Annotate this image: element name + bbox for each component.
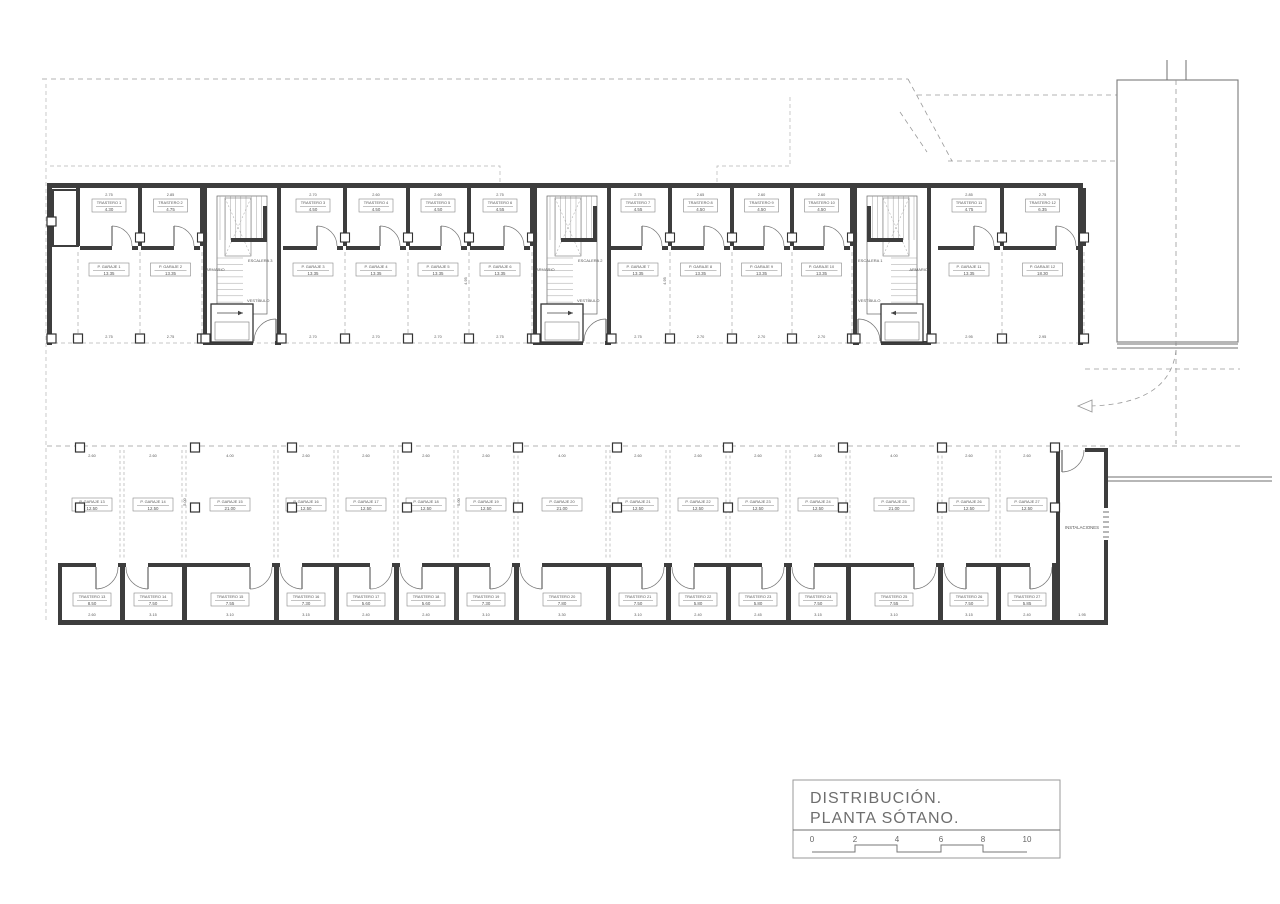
vestibulo-label-3: VESTÍBULO xyxy=(858,298,880,303)
instalaciones-door-arc xyxy=(1062,450,1084,472)
stair-core-3: ESCALERA 1ARMARIOVESTÍBULO xyxy=(851,188,936,345)
lower-garaje-label-21-area: 12.50 xyxy=(633,506,645,511)
lower-dim-18: 2.60 xyxy=(422,454,429,458)
lower-garaje-label-18-area: 12.50 xyxy=(421,506,433,511)
upper-unit-6: TRASTERO 64.55P. GARAJE 613.352.752.75 xyxy=(470,188,537,343)
lower-trastero-label-19: TRASTERO 197.30 xyxy=(467,593,505,606)
lower-garaje-label-17-name: P. GARAJE 17 xyxy=(353,499,378,504)
lower-trastero-label-18-area: 5.60 xyxy=(422,601,431,606)
escalera-label-1: ESCALERA 3 xyxy=(248,258,273,263)
trastero-label-4-area: 4.50 xyxy=(372,207,381,212)
lower-trastero-dim-21: 3.10 xyxy=(634,613,641,617)
lower-trastero-label-15: TRASTERO 157.55 xyxy=(211,593,249,606)
lower-garaje-label-22: P. GARAJE 2212.50 xyxy=(678,498,718,511)
lower-trastero-label-19-name: TRASTERO 19 xyxy=(473,594,500,599)
storage-room-16: TRASTERO 167.303.15 xyxy=(274,563,336,622)
structural-column xyxy=(613,443,622,452)
instalaciones-vent-ticks xyxy=(1103,512,1109,537)
lower-dim-16: 2.60 xyxy=(302,454,309,458)
lower-trastero-dim-20: 3.30 xyxy=(558,613,565,617)
lower-garaje-label-27-name: P. GARAJE 27 xyxy=(1014,499,1039,504)
parking-bay-25: 4.00P. GARAJE 2521.00 xyxy=(846,450,914,558)
garaje-label-5-area: 13.35 xyxy=(433,271,445,276)
lower-garaje-label-19-name: P. GARAJE 19 xyxy=(473,499,498,504)
drive-path-arc xyxy=(1084,350,1176,406)
lower-trastero-dim-26: 3.15 xyxy=(965,613,972,617)
trastero-label-3-name: TRASTERO 3 xyxy=(301,200,325,205)
vestibulo-label-2: VESTÍBULO xyxy=(577,298,599,303)
trastero-label-6: TRASTERO 64.55 xyxy=(483,199,517,212)
garaje-label-1-name: P. GARAJE 1 xyxy=(97,264,120,269)
instalaciones-dim: 1.95 xyxy=(1078,613,1085,617)
lower-garaje-label-19-area: 12.50 xyxy=(481,506,493,511)
garaje-label-1-area: 13.35 xyxy=(104,271,116,276)
lower-trastero-label-22-area: 5.80 xyxy=(694,601,703,606)
garaje-label-6: P. GARAJE 613.35 xyxy=(480,263,520,276)
structural-column xyxy=(851,334,860,343)
structural-column xyxy=(191,443,200,452)
garaje-label-7: P. GARAJE 713.35 xyxy=(618,263,658,276)
lower-garaje-label-13-area: 12.50 xyxy=(87,506,99,511)
garaje-label-3-name: P. GARAJE 3 xyxy=(301,264,324,269)
structural-column xyxy=(47,334,56,343)
lower-trastero-label-17: TRASTERO 175.60 xyxy=(347,593,385,606)
lower-garaje-label-14: P. GARAJE 1412.50 xyxy=(133,498,173,511)
garaje-label-7-area: 13.35 xyxy=(633,271,645,276)
lower-trastero-label-15-name: TRASTERO 15 xyxy=(217,594,244,599)
lower-trastero-label-13-name: TRASTERO 13 xyxy=(79,594,106,599)
lower-trastero-label-14: TRASTERO 147.50 xyxy=(134,593,172,606)
scale-numbers: 0 2 4 6 8 10 xyxy=(810,835,1032,844)
ramp-structure xyxy=(1117,80,1238,342)
lower-depth-dim-1: 5.00 xyxy=(183,498,187,505)
lower-trastero-label-25-name: TRASTERO 25 xyxy=(881,594,908,599)
lower-trastero-label-24: TRASTERO 247.50 xyxy=(799,593,837,606)
floor-plan-drawing: TRASTERO 14.30P. GARAJE 113.352.752.75TR… xyxy=(0,0,1280,904)
storage-room-15: TRASTERO 157.553.10 xyxy=(182,563,276,622)
lower-dim-23: 2.60 xyxy=(754,454,761,458)
lower-trastero-label-13: TRASTERO 138.50 xyxy=(73,593,111,606)
garaje-label-10-name: P. GARAJE 10 xyxy=(809,264,835,269)
structural-column xyxy=(1051,503,1060,512)
garaje-label-6-name: P. GARAJE 6 xyxy=(488,264,511,269)
lower-garaje-label-20: P. GARAJE 2021.00 xyxy=(542,498,582,511)
lower-dim-19: 2.60 xyxy=(482,454,489,458)
garaje-label-11-name: P. GARAJE 11 xyxy=(957,264,982,269)
lower-garaje-label-25-name: P. GARAJE 25 xyxy=(881,499,906,504)
structural-column xyxy=(728,334,737,343)
upper-unit-9: TRASTERO 94.50P. GARAJE 913.352.602.70 xyxy=(733,188,797,343)
lower-dim-25: 4.00 xyxy=(890,454,897,458)
trastero-label-4: TRASTERO 44.50 xyxy=(359,199,393,212)
lower-trastero-label-21: TRASTERO 217.50 xyxy=(619,593,657,606)
lower-garaje-label-15: P. GARAJE 1521.00 xyxy=(210,498,250,511)
garaje-label-5: P. GARAJE 513.35 xyxy=(418,263,458,276)
scale-mark-4: 4 xyxy=(895,835,900,844)
parking-bay-20: 4.00P. GARAJE 2021.00 xyxy=(514,450,582,558)
storage-room-27: TRASTERO 275.852.40 xyxy=(996,563,1056,622)
structural-column xyxy=(277,334,286,343)
storage-room-22: TRASTERO 225.802.40 xyxy=(666,563,728,622)
lower-dim-26: 2.60 xyxy=(965,454,972,458)
structural-column xyxy=(938,443,947,452)
lower-dim-14: 2.60 xyxy=(149,454,156,458)
garaje-label-8-name: P. GARAJE 8 xyxy=(689,264,712,269)
garaje-label-7-name: P. GARAJE 7 xyxy=(626,264,649,269)
trastero-label-1: TRASTERO 14.30 xyxy=(92,199,126,212)
storage-room-19: TRASTERO 197.303.10 xyxy=(454,563,516,622)
lower-trastero-label-13-area: 8.50 xyxy=(88,601,97,606)
upper-unit-10: TRASTERO 104.50P. GARAJE 1013.352.602.70 xyxy=(793,188,857,343)
left-shaft-room xyxy=(53,190,78,246)
lower-garaje-label-24-name: P. GARAJE 24 xyxy=(805,499,831,504)
garaje-label-8-area: 13.35 xyxy=(695,271,707,276)
parking-bay-16: 2.60P. GARAJE 1612.50 xyxy=(274,450,326,558)
lower-garaje-label-27: P. GARAJE 2712.50 xyxy=(1007,498,1047,511)
lower-trastero-label-19-area: 7.30 xyxy=(482,601,491,606)
garaje-label-11: P. GARAJE 1113.35 xyxy=(949,263,989,276)
lower-dim-17: 2.60 xyxy=(362,454,369,458)
lower-dim-22: 2.60 xyxy=(694,454,701,458)
ramp-edge-line-2 xyxy=(900,112,927,152)
parking-bay-22: 2.60P. GARAJE 2212.50 xyxy=(666,450,718,558)
armario-label-2: ARMARIO xyxy=(536,267,555,272)
storage-room-23: TRASTERO 235.802.45 xyxy=(726,563,788,622)
upper-depth-dim-1: 4.95 xyxy=(464,277,468,284)
garaje-label-11-area: 13.35 xyxy=(964,271,976,276)
scale-mark-6: 6 xyxy=(939,835,944,844)
right-side-wall xyxy=(1108,477,1272,481)
garaje-label-2-name: P. GARAJE 2 xyxy=(159,264,182,269)
instalaciones-label: INSTALACIONES xyxy=(1065,525,1099,530)
trastero-label-12-area: 6.35 xyxy=(1038,207,1047,212)
storage-room-26: TRASTERO 267.503.15 xyxy=(938,563,998,622)
lower-trastero-dim-27: 2.40 xyxy=(1023,613,1030,617)
storage-room-25: TRASTERO 257.553.10 xyxy=(846,563,940,622)
trastero-label-8-area: 4.50 xyxy=(696,207,705,212)
lower-garaje-label-17-area: 12.50 xyxy=(361,506,373,511)
lower-trastero-label-20: TRASTERO 207.80 xyxy=(543,593,581,606)
escalera-label-3: ESCALERA 1 xyxy=(858,258,883,263)
lower-trastero-label-20-area: 7.80 xyxy=(558,601,567,606)
lower-trastero-label-22: TRASTERO 225.80 xyxy=(679,593,717,606)
upper-dim-top-3: 2.70 xyxy=(309,193,316,197)
trastero-label-9-area: 4.50 xyxy=(757,207,766,212)
lower-garaje-label-16-name: P. GARAJE 16 xyxy=(293,499,318,504)
scale-bar xyxy=(812,845,1027,852)
ramp-edge-line xyxy=(908,79,952,161)
lower-trastero-dim-19: 3.10 xyxy=(482,613,489,617)
trastero-label-4-name: TRASTERO 4 xyxy=(364,200,389,205)
trastero-label-2: TRASTERO 24.75 xyxy=(154,199,188,212)
lower-trastero-dim-17: 2.40 xyxy=(362,613,369,617)
upper-dim-bottom-12: 2.95 xyxy=(1039,335,1046,339)
storage-room-13: TRASTERO 138.502.60 xyxy=(62,563,122,617)
structural-column xyxy=(724,503,733,512)
lower-trastero-label-24-area: 7.50 xyxy=(814,601,823,606)
trastero-label-5: TRASTERO 54.50 xyxy=(421,199,455,212)
upper-dim-bottom-4: 2.70 xyxy=(372,335,379,339)
storage-room-21: TRASTERO 217.503.10 xyxy=(606,563,668,622)
trastero-label-8-name: TRASTERO 8 xyxy=(688,200,712,205)
drive-direction-arrow xyxy=(1078,400,1092,412)
lower-garaje-label-23-name: P. GARAJE 23 xyxy=(745,499,770,504)
upper-dim-top-12: 2.75 xyxy=(1039,193,1046,197)
lower-garaje-label-27-area: 12.50 xyxy=(1022,506,1034,511)
generated-plan-content: TRASTERO 14.30P. GARAJE 113.352.752.75TR… xyxy=(47,188,1089,622)
lower-trastero-label-27-name: TRASTERO 27 xyxy=(1014,594,1041,599)
upper-dim-top-4: 2.60 xyxy=(372,193,379,197)
trastero-label-12: TRASTERO 126.35 xyxy=(1026,199,1060,212)
lower-trastero-label-26: TRASTERO 267.50 xyxy=(950,593,988,606)
structural-column xyxy=(76,503,85,512)
lower-trastero-dim-22: 2.40 xyxy=(694,613,701,617)
garaje-label-12: P. GARAJE 1218.30 xyxy=(1023,263,1063,276)
upper-dim-top-8: 2.65 xyxy=(697,193,704,197)
upper-unit-4: TRASTERO 44.50P. GARAJE 413.352.602.70 xyxy=(346,188,413,343)
parking-bay-18: 2.60P. GARAJE 1812.50 xyxy=(394,450,446,558)
ramp-ticks xyxy=(1167,60,1186,80)
garaje-label-12-name: P. GARAJE 12 xyxy=(1030,264,1055,269)
lower-garaje-label-24: P. GARAJE 2412.50 xyxy=(798,498,838,511)
lower-trastero-label-17-name: TRASTERO 17 xyxy=(353,594,380,599)
garaje-label-10: P. GARAJE 1013.35 xyxy=(802,263,842,276)
garaje-label-4-name: P. GARAJE 4 xyxy=(364,264,388,269)
structural-column xyxy=(288,503,297,512)
upper-dim-bottom-10: 2.70 xyxy=(818,335,825,339)
lower-dim-20: 4.00 xyxy=(558,454,565,458)
upper-dim-bottom-11: 2.95 xyxy=(965,335,972,339)
lower-garaje-label-23: P. GARAJE 2312.50 xyxy=(738,498,778,511)
lower-trastero-label-26-area: 7.50 xyxy=(965,601,974,606)
garaje-label-4-area: 13.35 xyxy=(371,271,383,276)
parking-bay-19: 2.60P. GARAJE 1912.50 xyxy=(454,450,506,558)
lower-trastero-label-14-area: 7.50 xyxy=(149,601,158,606)
lower-dim-27: 2.60 xyxy=(1023,454,1030,458)
lower-trastero-label-23-name: TRASTERO 23 xyxy=(745,594,772,599)
trastero-label-1-area: 4.30 xyxy=(105,207,114,212)
lower-dim-13: 2.60 xyxy=(88,454,95,458)
escalera-label-2: ESCALERA 2 xyxy=(578,258,603,263)
trastero-label-7-area: 4.55 xyxy=(634,207,643,212)
lower-garaje-label-15-area: 21.00 xyxy=(225,506,237,511)
upper-unit-5: TRASTERO 54.50P. GARAJE 513.352.602.70 xyxy=(409,188,474,343)
lower-trastero-label-17-area: 5.60 xyxy=(362,601,371,606)
lower-garaje-label-17: P. GARAJE 1712.50 xyxy=(346,498,386,511)
trastero-label-7: TRASTERO 74.55 xyxy=(621,199,655,212)
trastero-label-5-name: TRASTERO 5 xyxy=(426,200,450,205)
lower-dim-21: 2.60 xyxy=(634,454,641,458)
lower-garaje-label-15-name: P. GARAJE 15 xyxy=(217,499,242,504)
structural-column xyxy=(1080,334,1089,343)
trastero-label-10: TRASTERO 104.50 xyxy=(805,199,839,212)
structural-column xyxy=(839,443,848,452)
lower-trastero-label-16-name: TRASTERO 16 xyxy=(293,594,320,599)
armario-label-3: ARMARIO xyxy=(909,267,928,272)
lower-garaje-label-22-name: P. GARAJE 22 xyxy=(685,499,710,504)
parking-bay-24: 2.60P. GARAJE 2412.50 xyxy=(786,450,838,558)
upper-dim-bottom-7: 2.75 xyxy=(634,335,641,339)
upper-left-wall xyxy=(47,183,52,345)
lower-garaje-label-23-area: 12.50 xyxy=(753,506,765,511)
lower-trastero-label-14-name: TRASTERO 14 xyxy=(140,594,167,599)
garaje-label-8: P. GARAJE 813.35 xyxy=(681,263,721,276)
trastero-label-3: TRASTERO 34.50 xyxy=(296,199,330,212)
parking-bay-27: 2.60P. GARAJE 2712.50 xyxy=(996,450,1047,558)
lower-trastero-dim-18: 2.40 xyxy=(422,613,429,617)
upper-unit-11: TRASTERO 114.75P. GARAJE 1113.352.852.95 xyxy=(938,188,1007,343)
garaje-label-6-area: 13.35 xyxy=(495,271,507,276)
garaje-label-4: P. GARAJE 413.35 xyxy=(356,263,396,276)
lower-garaje-label-26-area: 12.50 xyxy=(964,506,976,511)
trastero-label-2-area: 4.75 xyxy=(166,207,175,212)
column-grid xyxy=(724,443,733,512)
trastero-label-8: TRASTERO 84.50 xyxy=(684,199,718,212)
structural-column xyxy=(136,334,145,343)
title-block: DISTRIBUCIÓN. PLANTA SÓTANO. 0 2 4 6 8 1… xyxy=(793,780,1060,858)
upper-dim-top-1: 2.75 xyxy=(105,193,112,197)
trastero-label-11-name: TRASTERO 11 xyxy=(956,200,982,205)
lower-trastero-label-16-area: 7.30 xyxy=(302,601,311,606)
upper-dim-top-2: 2.85 xyxy=(167,193,174,197)
structural-column xyxy=(47,217,56,226)
lower-trastero-label-21-area: 7.50 xyxy=(634,601,643,606)
trastero-label-9-name: TRASTERO 9 xyxy=(749,200,773,205)
lower-trastero-dim-14: 3.15 xyxy=(149,613,156,617)
upper-dim-bottom-6: 2.75 xyxy=(496,335,503,339)
upper-dim-top-10: 2.60 xyxy=(818,193,825,197)
lower-trastero-label-21-name: TRASTERO 21 xyxy=(625,594,652,599)
parking-bay-17: 2.60P. GARAJE 1712.50 xyxy=(334,450,386,558)
upper-dim-top-6: 2.75 xyxy=(496,193,503,197)
lower-trastero-label-18-name: TRASTERO 18 xyxy=(413,594,440,599)
stair-core-2: ESCALERA 2ARMARIOVESTÍBULO xyxy=(531,188,616,345)
structural-column xyxy=(201,334,210,343)
upper-unit-7: TRASTERO 74.55P. GARAJE 713.352.752.75 xyxy=(608,188,675,343)
garaje-label-2-area: 13.35 xyxy=(165,271,177,276)
storage-room-20: TRASTERO 207.803.30 xyxy=(514,563,608,622)
lower-trastero-dim-23: 2.45 xyxy=(754,613,761,617)
lower-trastero-label-27: TRASTERO 275.85 xyxy=(1008,593,1046,606)
upper-top-wall xyxy=(47,183,1083,188)
storage-right-wall xyxy=(1052,563,1057,622)
lower-trastero-dim-15: 3.10 xyxy=(226,613,233,617)
lower-garaje-label-26-name: P. GARAJE 26 xyxy=(956,499,981,504)
lower-trastero-label-24-name: TRASTERO 24 xyxy=(805,594,832,599)
lower-garaje-label-25-area: 21.00 xyxy=(889,506,901,511)
upper-unit-8: TRASTERO 84.50P. GARAJE 813.352.652.70 xyxy=(671,188,737,343)
lower-trastero-label-18: TRASTERO 185.60 xyxy=(407,593,445,606)
upper-dim-bottom-1: 2.75 xyxy=(105,335,112,339)
trastero-label-11-area: 4.75 xyxy=(965,207,974,212)
structural-column xyxy=(927,334,936,343)
structural-column xyxy=(341,334,350,343)
lower-trastero-dim-25: 3.10 xyxy=(890,613,897,617)
lower-trastero-dim-13: 2.60 xyxy=(88,613,95,617)
trastero-label-7-name: TRASTERO 7 xyxy=(626,200,650,205)
structural-column xyxy=(514,503,523,512)
upper-dim-top-11: 2.85 xyxy=(965,193,972,197)
lower-garaje-label-21: P. GARAJE 2112.50 xyxy=(618,498,658,511)
lower-dim-24: 2.60 xyxy=(814,454,821,458)
structural-column xyxy=(288,443,297,452)
lower-garaje-label-25: P. GARAJE 2521.00 xyxy=(874,498,914,511)
lower-garaje-label-19: P. GARAJE 1912.50 xyxy=(466,498,506,511)
lower-trastero-dim-16: 3.15 xyxy=(302,613,309,617)
upper-dim-bottom-8: 2.70 xyxy=(697,335,704,339)
upper-unit-12: TRASTERO 126.35P. GARAJE 1218.302.752.95 xyxy=(1003,188,1089,343)
upper-unit-1: TRASTERO 14.30P. GARAJE 113.352.752.75 xyxy=(80,188,145,343)
stair-core-1: ESCALERA 3ARMARIOVESTÍBULO xyxy=(201,188,286,345)
structural-column xyxy=(1051,443,1060,452)
structural-column xyxy=(839,503,848,512)
scale-mark-0: 0 xyxy=(810,835,815,844)
lower-trastero-label-26-name: TRASTERO 26 xyxy=(956,594,983,599)
parking-bay-23: 2.60P. GARAJE 2312.50 xyxy=(726,450,778,558)
trastero-label-6-area: 4.55 xyxy=(496,207,505,212)
lower-garaje-label-18-name: P. GARAJE 18 xyxy=(413,499,438,504)
unit1-left-wall xyxy=(76,188,80,246)
lower-trastero-label-25-area: 7.55 xyxy=(890,601,899,606)
scale-mark-2: 2 xyxy=(853,835,858,844)
lower-depth-dim-2: 5.00 xyxy=(457,498,461,505)
parking-bay-14: 2.60P. GARAJE 1412.50 xyxy=(120,450,173,558)
garaje-label-3: P. GARAJE 313.35 xyxy=(293,263,333,276)
lower-garaje-label-16-area: 12.50 xyxy=(301,506,313,511)
lower-garaje-label-14-area: 12.50 xyxy=(148,506,160,511)
structural-column xyxy=(531,334,540,343)
upper-dim-bottom-2: 2.75 xyxy=(167,335,174,339)
structural-column xyxy=(613,503,622,512)
lower-garaje-label-20-name: P. GARAJE 20 xyxy=(549,499,575,504)
storage-room-17: TRASTERO 175.602.40 xyxy=(334,563,396,622)
lower-trastero-label-15-area: 7.55 xyxy=(226,601,235,606)
trastero-label-12-name: TRASTERO 12 xyxy=(1029,200,1056,205)
structural-column xyxy=(998,334,1007,343)
garaje-label-2: P. GARAJE 213.35 xyxy=(151,263,191,276)
lower-garaje-label-24-area: 12.50 xyxy=(813,506,825,511)
structural-column xyxy=(76,443,85,452)
structural-column xyxy=(403,503,412,512)
garaje-label-9: P. GARAJE 913.35 xyxy=(742,263,782,276)
storage-room-24: TRASTERO 247.503.15 xyxy=(786,563,848,622)
upper-depth-dim-2: 4.95 xyxy=(663,277,667,284)
garaje-label-5-name: P. GARAJE 5 xyxy=(426,264,449,269)
scale-mark-8: 8 xyxy=(981,835,986,844)
upper-dim-bottom-5: 2.70 xyxy=(434,335,441,339)
trastero-label-2-name: TRASTERO 2 xyxy=(158,200,182,205)
garaje-label-1: P. GARAJE 113.35 xyxy=(89,263,129,276)
storage-left-wall xyxy=(58,563,62,624)
scale-mark-10: 10 xyxy=(1023,835,1032,844)
lower-trastero-label-25: TRASTERO 257.55 xyxy=(875,593,913,606)
lower-trastero-label-20-name: TRASTERO 20 xyxy=(549,594,576,599)
trastero-label-1-name: TRASTERO 1 xyxy=(97,200,121,205)
garaje-label-3-area: 13.35 xyxy=(308,271,320,276)
lower-garaje-label-20-area: 21.00 xyxy=(557,506,569,511)
overhang-line-right xyxy=(717,96,790,182)
title-line-2: PLANTA SÓTANO. xyxy=(810,808,959,827)
structural-column xyxy=(74,334,83,343)
garaje-label-10-area: 13.35 xyxy=(816,271,828,276)
trastero-label-3-area: 4.50 xyxy=(309,207,318,212)
lower-dim-15: 4.00 xyxy=(226,454,233,458)
vestibulo-label-1: VESTÍBULO xyxy=(247,298,269,303)
instalaciones-right-wall-b xyxy=(1104,540,1108,624)
instalaciones-right-wall-a xyxy=(1104,448,1108,508)
trastero-label-10-area: 4.50 xyxy=(817,207,826,212)
upper-dim-top-7: 2.75 xyxy=(634,193,641,197)
